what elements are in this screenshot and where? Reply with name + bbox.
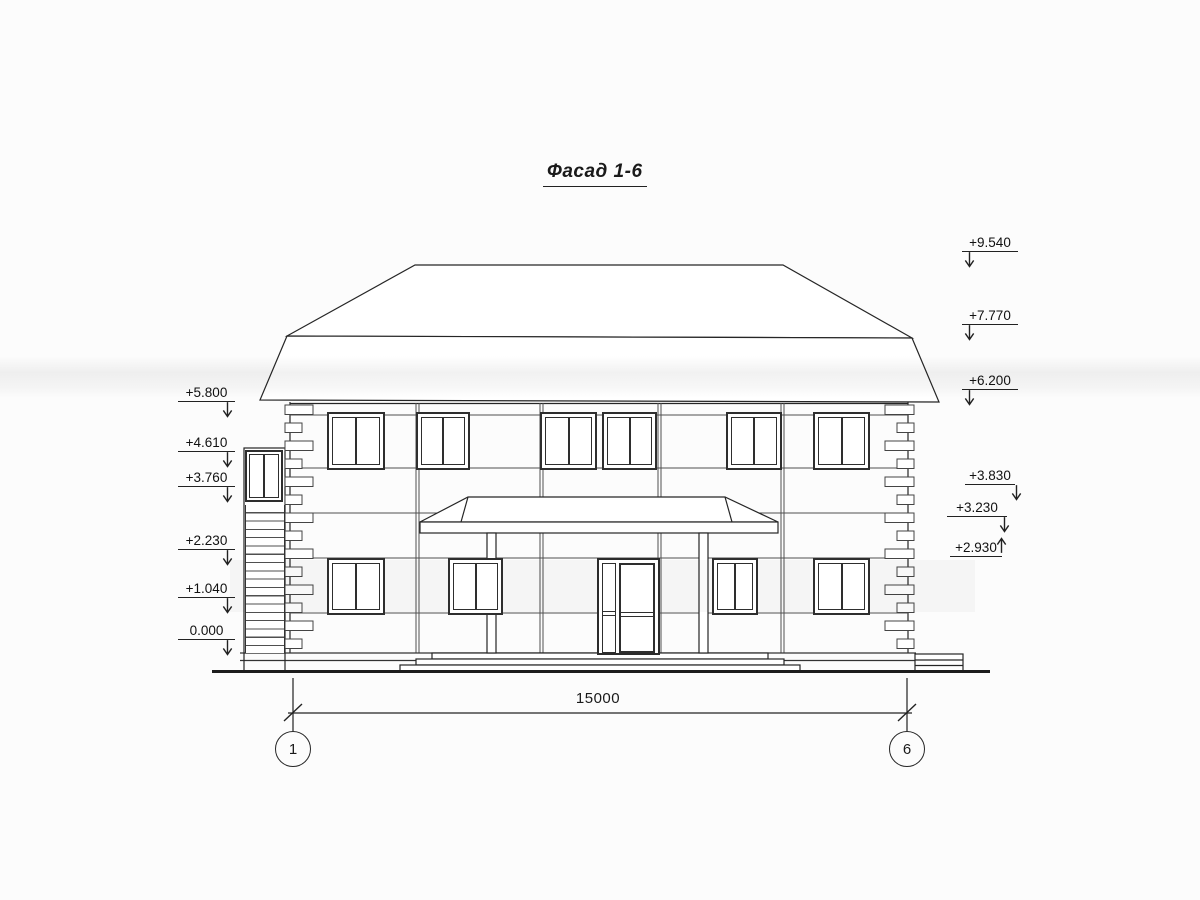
level-arrow-icon [963,389,976,406]
entrance-door [597,558,660,655]
axis-circle-1: 1 [275,731,311,767]
elevation-mark: +3.760 [178,470,235,487]
roof-lower-slope [260,336,939,402]
elevation-mark: +4.610 [178,435,235,452]
window-upper-4 [602,412,657,470]
elevation-mark: +2.230 [178,533,235,550]
axis-circle-6: 6 [889,731,925,767]
elevation-mark: 0.000 [178,623,235,640]
canopy-post-right [699,533,708,653]
level-arrow-icon [221,451,234,468]
elevation-mark: +7.770 [962,308,1018,325]
elevation-mark: +1.040 [178,581,235,598]
window-lower-1 [327,558,385,615]
window-upper-3 [540,412,597,470]
elevation-mark: +5.800 [178,385,235,402]
level-arrow-icon [221,549,234,566]
level-arrow-icon [221,597,234,614]
window-lower-2 [448,558,503,615]
level-arrow-icon [221,486,234,503]
window-upper-1 [327,412,385,470]
entrance-steps [400,653,800,671]
level-arrow-icon [1010,484,1023,501]
level-arrow-icon [221,639,234,656]
elevation-mark: +3.230 [947,500,1007,517]
ladder-window [245,450,283,502]
level-arrow-up-icon [995,537,1008,554]
level-arrow-icon [963,251,976,268]
door-leaf [619,563,655,653]
drawing-title: Фасад 1-6 [543,161,647,187]
window-upper-6 [813,412,870,470]
window-upper-2 [416,412,470,470]
roof-upper-slope [287,265,912,338]
elevation-mark: +3.830 [965,468,1015,485]
window-lower-4 [813,558,870,615]
elevation-mark: +6.200 [962,373,1018,390]
dimension-label: 15000 [560,690,636,707]
window-upper-5 [726,412,782,470]
elevation-mark: +2.930 [950,540,1002,557]
side-steps [915,654,963,671]
elevation-mark: +9.540 [962,235,1018,252]
facade-drawing-sheet: Фасад 1-6 +5.800 +4.610 +3.760 +2.230 +1… [0,0,1200,900]
level-arrow-icon [963,324,976,341]
level-arrow-icon [221,401,234,418]
ladder-rungs [245,505,285,653]
door-sidelight [602,563,616,653]
window-lower-3 [712,558,758,615]
level-arrow-icon [998,516,1011,533]
